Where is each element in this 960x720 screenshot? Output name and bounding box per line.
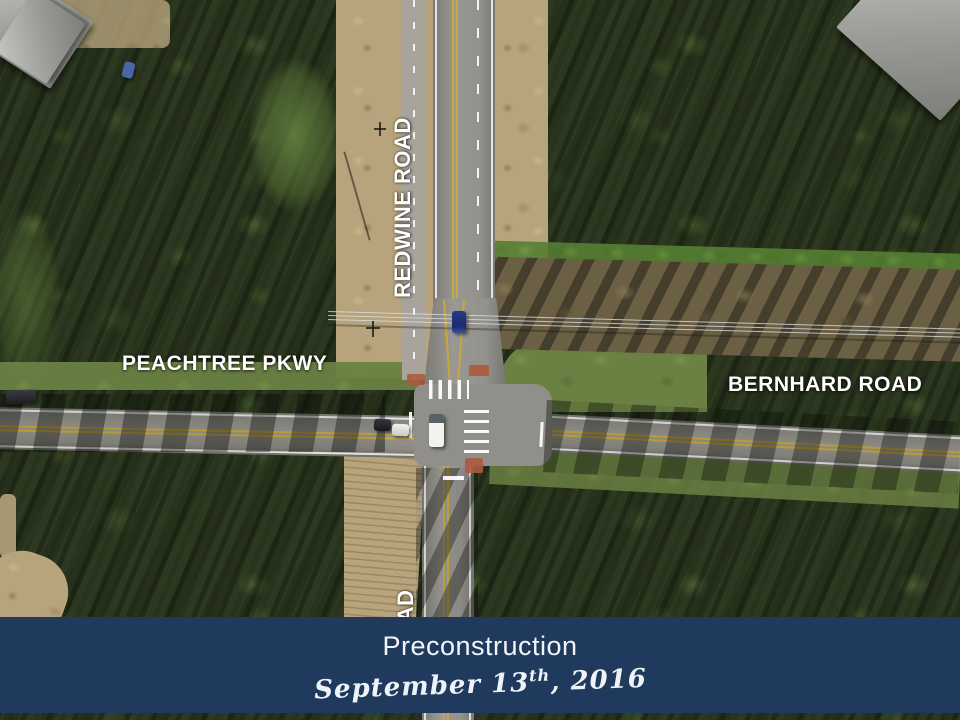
tree-shadows-west-road — [0, 394, 385, 452]
ped-ramp-northeast — [469, 365, 489, 376]
title-banner: Preconstruction September 13th, 2016 — [0, 617, 960, 713]
slide-date: September 13th, 2016 — [313, 656, 647, 706]
car-white-west-approach — [392, 424, 409, 437]
date-superscript: th — [528, 666, 550, 686]
stop-bar-west — [409, 412, 412, 438]
utility-pole — [372, 321, 374, 337]
car-dark-far-west — [6, 389, 36, 404]
dirt-sliver-left — [0, 494, 16, 558]
label-redwine-road: REDWINE ROAD — [390, 138, 416, 298]
slide-title: Preconstruction — [382, 630, 577, 662]
powerline-corridor — [467, 256, 960, 362]
car-dark-west-approach — [374, 419, 391, 432]
label-peachtree-pkwy: PEACHTREE PKWY — [122, 352, 327, 376]
stop-bar-south — [443, 476, 464, 480]
roof-ridge-line — [931, 0, 960, 23]
date-suffix: , 2016 — [550, 664, 647, 697]
tree-shadows-south-road — [416, 468, 478, 620]
center-line-yellow-2 — [456, 0, 458, 300]
slide: REDWINE ROAD AD PEACHTREE PKWY BERNHARD … — [0, 0, 960, 720]
car-blue-north-leg — [452, 311, 466, 333]
label-bernhard-road: BERNHARD ROAD — [728, 373, 922, 397]
crosswalk-north — [429, 380, 469, 399]
date-prefix: September 13 — [313, 668, 529, 705]
crosswalk-east — [464, 406, 489, 453]
ped-ramp-northwest — [407, 374, 425, 385]
center-line-yellow-1 — [452, 0, 454, 300]
utility-pole-2 — [379, 122, 381, 136]
ped-ramp-southeast — [465, 458, 483, 473]
car-white-intersection — [429, 414, 444, 447]
